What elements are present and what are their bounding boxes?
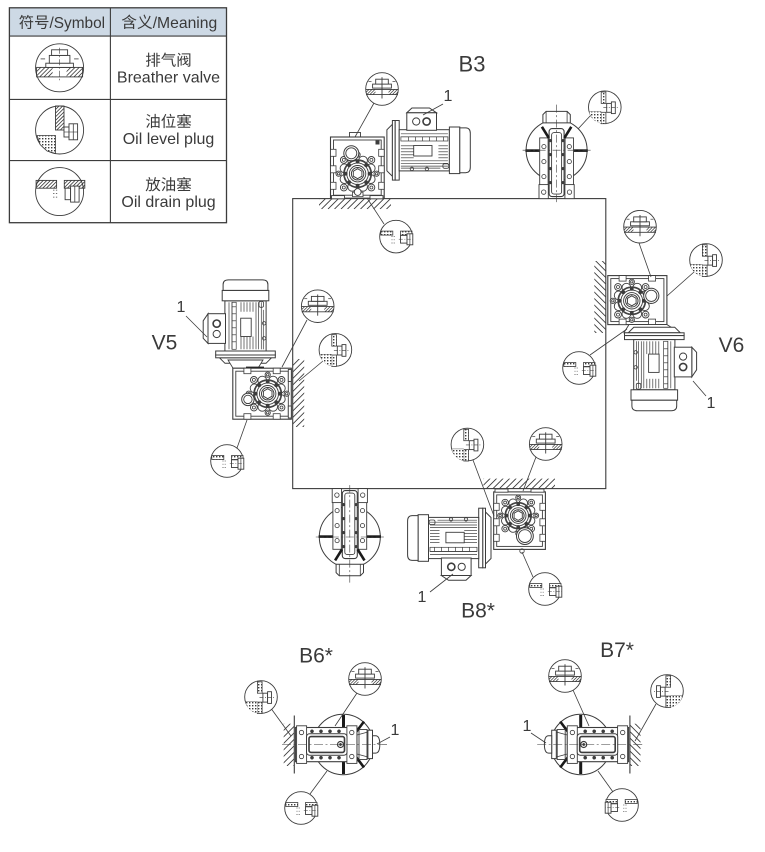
svg-text:B6*: B6* <box>299 645 333 668</box>
svg-text:1: 1 <box>418 589 427 606</box>
svg-text:/Symbol: /Symbol <box>50 15 106 32</box>
svg-text:B7*: B7* <box>600 639 634 662</box>
svg-text:1: 1 <box>391 722 400 739</box>
svg-text:B8*: B8* <box>461 600 495 623</box>
svg-text:1: 1 <box>444 88 453 105</box>
svg-text:/Meaning: /Meaning <box>153 15 218 32</box>
svg-text:1: 1 <box>177 299 186 316</box>
svg-text:V6: V6 <box>719 334 745 357</box>
svg-text:B3: B3 <box>459 52 486 77</box>
svg-text:V5: V5 <box>152 332 178 355</box>
svg-text:1: 1 <box>523 718 532 735</box>
svg-text:Oil drain plug: Oil drain plug <box>121 194 215 211</box>
svg-text:Oil level plug: Oil level plug <box>123 131 215 148</box>
svg-text:Breather valve: Breather valve <box>117 70 220 87</box>
svg-text:1: 1 <box>707 395 716 412</box>
